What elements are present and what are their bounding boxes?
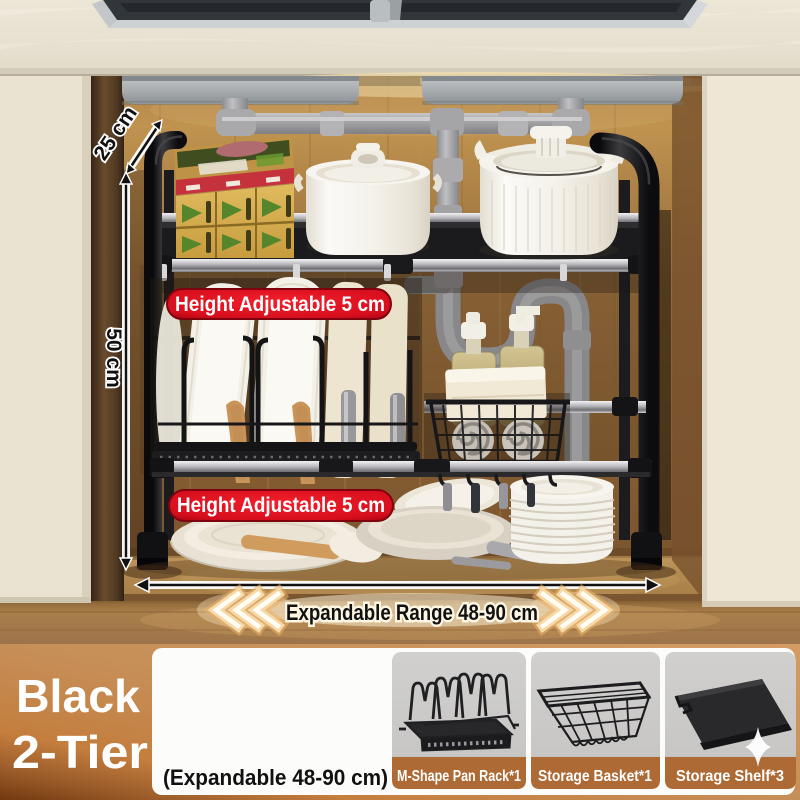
svg-text:Height Adjustable 5 cm: Height Adjustable 5 cm [175,292,385,316]
svg-text:2-Tier: 2-Tier [12,726,148,778]
svg-text:M-Shape Pan Rack*1: M-Shape Pan Rack*1 [397,768,521,785]
svg-text:Height Adjustable 5 cm: Height Adjustable 5 cm [177,493,385,517]
svg-text:Storage Shelf*3: Storage Shelf*3 [676,768,784,785]
svg-text:(Expandable 48-90 cm): (Expandable 48-90 cm) [163,765,388,790]
svg-text:Storage Basket*1: Storage Basket*1 [538,768,652,785]
svg-text:50 cm: 50 cm [102,328,125,388]
svg-text:Expandable Range 48-90 cm: Expandable Range 48-90 cm [286,600,538,625]
svg-text:Black: Black [16,670,140,722]
